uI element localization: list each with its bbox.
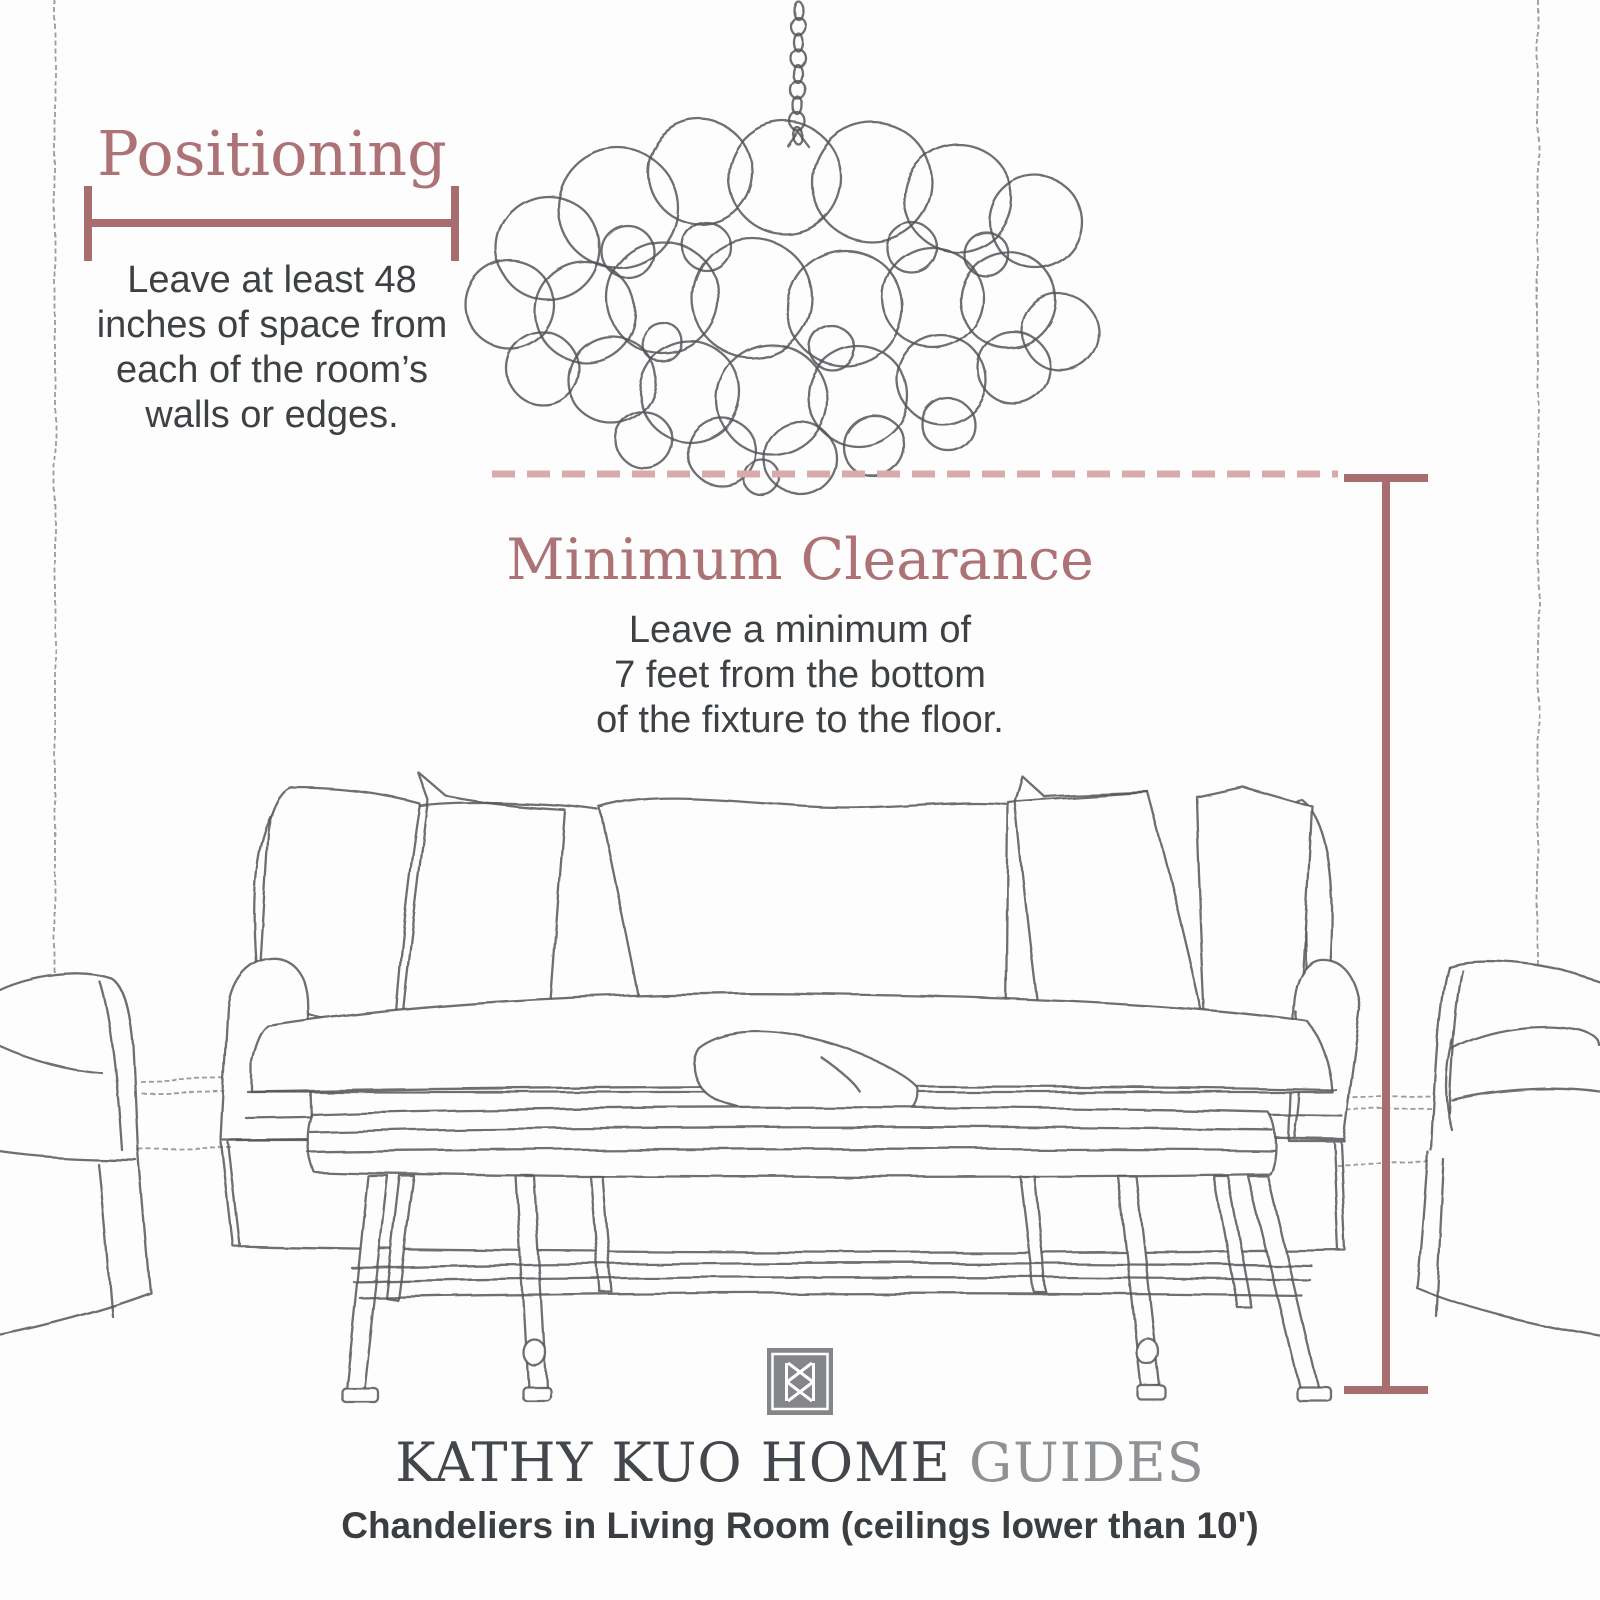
bench-leg [1214, 1176, 1252, 1308]
kathy-kuo-home-logo-icon [767, 1348, 833, 1415]
positioning-title: Positioning [52, 118, 492, 189]
sofa-back-pillow [600, 799, 1008, 1018]
guide-subtitle: Chandeliers in Living Room (ceilings low… [0, 1504, 1600, 1548]
right-armchair-sketch [1417, 961, 1600, 1336]
clearance-title: Minimum Clearance [500, 528, 1100, 594]
chandelier-sketch [466, 1, 1098, 496]
bench-leg [590, 1176, 612, 1292]
clearance-measure-line [1344, 478, 1428, 1390]
positioning-description: Leave at least 48 inches of space from e… [42, 258, 502, 438]
bench-leg [1020, 1176, 1046, 1292]
positioning-measure-line [85, 186, 458, 261]
clearance-description: Leave a minimum of 7 feet from the botto… [450, 608, 1150, 743]
brand-title: KATHY KUO HOME GUIDES [0, 1436, 1600, 1490]
bench-stretchers [352, 1263, 1312, 1298]
chandelier-bubbles [466, 120, 1098, 496]
brand-secondary: GUIDES [969, 1431, 1205, 1494]
footer: KATHY KUO HOME GUIDES Chandeliers in Liv… [0, 1348, 1600, 1548]
sofa-sketch [221, 772, 1360, 1253]
brand-primary: KATHY KUO HOME [395, 1431, 951, 1494]
bench-top-cushion [308, 1108, 1276, 1177]
chandelier-guide-infographic: Positioning Leave at least 48 inches of … [0, 0, 1600, 1600]
left-armchair-sketch [0, 974, 150, 1335]
